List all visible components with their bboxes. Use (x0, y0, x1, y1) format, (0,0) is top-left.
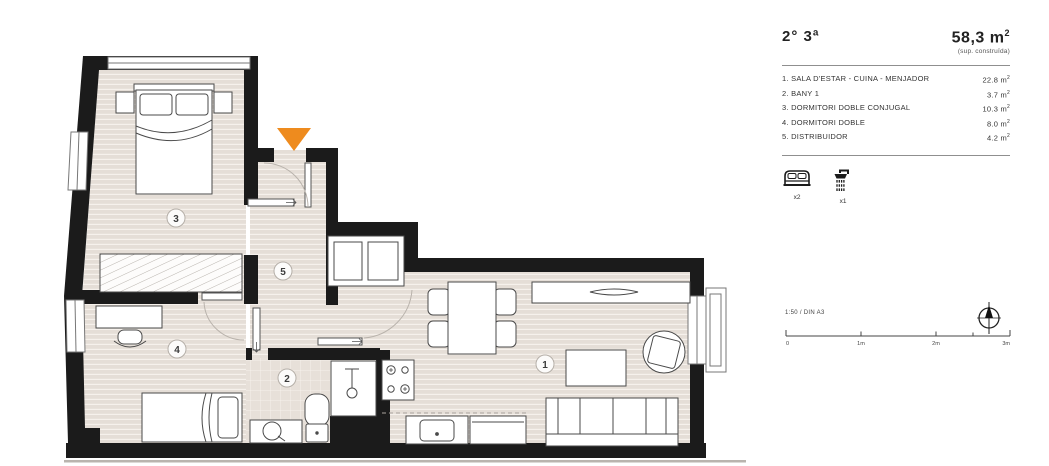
room-label-bedroom-main: 3 (173, 214, 179, 225)
desk-chair (118, 330, 142, 344)
legend-panel: 2° 3ª 58,3 m2 (sup. construïda) 1. SALA … (782, 28, 1010, 205)
dining-chair (428, 321, 450, 347)
room-name: 4. DORMITORI DOBLE (782, 116, 865, 131)
total-area-value: 58,3 (952, 29, 985, 46)
room-area: 4.2 m2 (987, 130, 1010, 145)
room-table: 1. SALA D'ESTAR - CUINA - MENJADOR 22.8 … (782, 72, 1010, 145)
entrance-arrow-icon (277, 128, 311, 151)
kitchen-counter (470, 416, 526, 444)
toilet-bowl (305, 394, 329, 426)
compass-icon (977, 300, 1001, 336)
sliding-door-bedroom-second (202, 293, 242, 300)
scale-tick-2m: 2m (932, 341, 940, 347)
dining-chair (494, 321, 516, 347)
scale-tick-0: 0 (786, 341, 789, 347)
floor-plan: 1 2 3 4 5 (0, 0, 760, 466)
nightstand-left (116, 92, 134, 113)
coffee-table (566, 350, 626, 386)
room-row: 1. SALA D'ESTAR - CUINA - MENJADOR 22.8 … (782, 72, 1010, 87)
shower-icon (832, 168, 854, 192)
nightstand-right (214, 92, 232, 113)
dining-table (448, 282, 496, 354)
shower-count: x1 (832, 198, 854, 205)
unit-label: 2° 3ª (782, 28, 819, 45)
room-area: 22.8 m2 (983, 72, 1010, 87)
dining-chair (494, 289, 516, 315)
total-area: 58,3 m2 (952, 28, 1010, 47)
pillow (218, 397, 238, 438)
sofa (546, 398, 678, 446)
room-label-living: 1 (542, 360, 548, 371)
room-row: 5. DISTRIBUIDOR 4.2 m2 (782, 130, 1010, 145)
room-name: 1. SALA D'ESTAR - CUINA - MENJADOR (782, 72, 929, 87)
page-edge-line (64, 460, 746, 463)
scale-block: 1:50 / DIN A3 0 1m 2m 3m (785, 310, 1011, 348)
desk (96, 306, 162, 328)
room-row: 4. DORMITORI DOBLE 8.0 m2 (782, 116, 1010, 131)
stove (382, 360, 414, 400)
area-note: (sup. construïda) (952, 48, 1010, 55)
fixtures-row: x2 x1 (782, 168, 1010, 205)
room-area: 3.7 m2 (987, 87, 1010, 102)
room-name: 3. DORMITORI DOBLE CONJUGAL (782, 101, 910, 116)
total-area-unit: m (990, 29, 1005, 46)
scale-tick-1m: 1m (857, 341, 865, 347)
pillow (140, 94, 172, 115)
dining-chair (428, 289, 450, 315)
room-row: 3. DORMITORI DOBLE CONJUGAL 10.3 m2 (782, 101, 1010, 116)
divider (782, 155, 1010, 156)
room-name: 2. BANY 1 (782, 87, 819, 102)
scale-tick-3m: 3m (1002, 341, 1010, 347)
floorplan-page: 1 2 3 4 5 2° 3ª 58,3 m2 (sup. construïda… (0, 0, 1049, 466)
bed-icon (782, 168, 812, 188)
room-name: 5. DISTRIBUIDOR (782, 130, 848, 145)
entry-cabinet (328, 236, 404, 286)
room-area: 8.0 m2 (987, 116, 1010, 131)
pillow (176, 94, 208, 115)
floor-hall (250, 162, 338, 360)
room-row: 2. BANY 1 3.7 m2 (782, 87, 1010, 102)
room-label-bedroom-second: 4 (174, 345, 180, 356)
wardrobe (100, 254, 242, 292)
divider (782, 65, 1010, 66)
floor-plan-drawing: 1 2 3 4 5 (0, 0, 760, 466)
floor-entry-threshold (272, 150, 306, 164)
room-label-hall: 5 (280, 267, 286, 278)
bed-count: x2 (782, 194, 812, 201)
room-area: 10.3 m2 (983, 101, 1010, 116)
room-label-bath: 2 (284, 374, 290, 385)
